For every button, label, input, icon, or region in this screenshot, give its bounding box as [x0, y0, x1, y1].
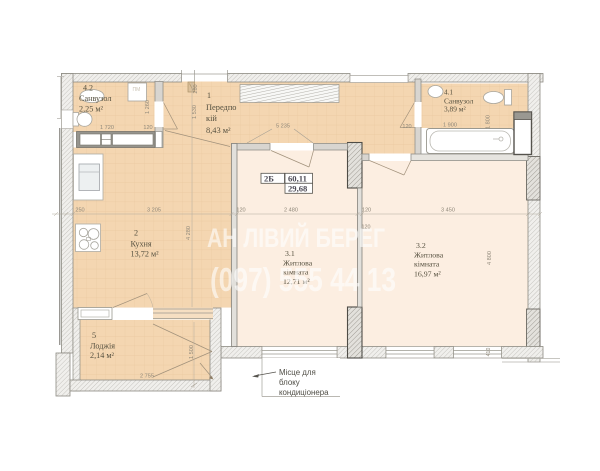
svg-text:280: 280: [193, 84, 199, 93]
svg-text:8,43 м²: 8,43 м²: [206, 126, 231, 135]
svg-text:3 450: 3 450: [441, 208, 455, 214]
svg-text:2,14 м²: 2,14 м²: [90, 351, 115, 360]
svg-text:1 530: 1 530: [192, 105, 198, 119]
svg-text:13,72 м²: 13,72 м²: [131, 250, 160, 259]
svg-text:120: 120: [362, 208, 371, 214]
svg-text:120: 120: [143, 125, 152, 131]
svg-text:3,89 м²: 3,89 м²: [444, 105, 466, 114]
svg-text:Лоджія: Лоджія: [90, 342, 115, 351]
svg-text:(097) 555 44 13: (097) 555 44 13: [210, 261, 396, 298]
svg-text:2 480: 2 480: [284, 208, 298, 214]
svg-text:2 755: 2 755: [140, 374, 154, 380]
svg-text:5 235: 5 235: [276, 124, 290, 130]
svg-text:3.2: 3.2: [416, 241, 426, 250]
svg-text:29,68: 29,68: [288, 183, 308, 193]
svg-text:250: 250: [75, 208, 84, 214]
svg-text:1: 1: [207, 91, 211, 100]
svg-text:5: 5: [92, 331, 96, 340]
svg-text:кімната: кімната: [414, 260, 440, 269]
svg-text:410: 410: [486, 348, 492, 357]
svg-text:120: 120: [236, 208, 245, 214]
svg-text:2,25 м²: 2,25 м²: [79, 105, 104, 114]
svg-text:1 260: 1 260: [145, 100, 151, 114]
svg-text:Житлова: Житлова: [414, 251, 444, 260]
svg-text:4.1: 4.1: [444, 89, 453, 97]
svg-text:ПМ: ПМ: [133, 87, 141, 93]
svg-text:1 500: 1 500: [189, 345, 195, 359]
svg-text:Місце для: Місце для: [279, 368, 316, 377]
svg-text:120: 120: [402, 124, 411, 130]
svg-text:16,97 м²: 16,97 м²: [414, 270, 441, 279]
svg-text:3 205: 3 205: [147, 208, 161, 214]
svg-text:кондиціонера: кондиціонера: [279, 388, 329, 397]
svg-text:2: 2: [134, 229, 138, 238]
svg-text:1 900: 1 900: [443, 123, 457, 129]
svg-text:4 800: 4 800: [487, 251, 493, 265]
svg-text:60,11: 60,11: [288, 173, 307, 183]
svg-text:4 280: 4 280: [186, 226, 192, 240]
svg-text:блоку: блоку: [279, 378, 300, 387]
svg-text:1 800: 1 800: [486, 115, 492, 129]
svg-text:2Б: 2Б: [264, 173, 274, 183]
svg-text:1 720: 1 720: [100, 125, 114, 131]
svg-text:АН ЛІВИЙ БЕРЕГ: АН ЛІВИЙ БЕРЕГ: [207, 222, 385, 253]
svg-text:4.2: 4.2: [83, 84, 93, 93]
svg-text:Передпо: Передпо: [206, 103, 237, 112]
svg-text:Кухня: Кухня: [131, 240, 152, 249]
svg-text:кій: кій: [206, 114, 217, 123]
svg-text:Санвузол: Санвузол: [79, 94, 111, 103]
